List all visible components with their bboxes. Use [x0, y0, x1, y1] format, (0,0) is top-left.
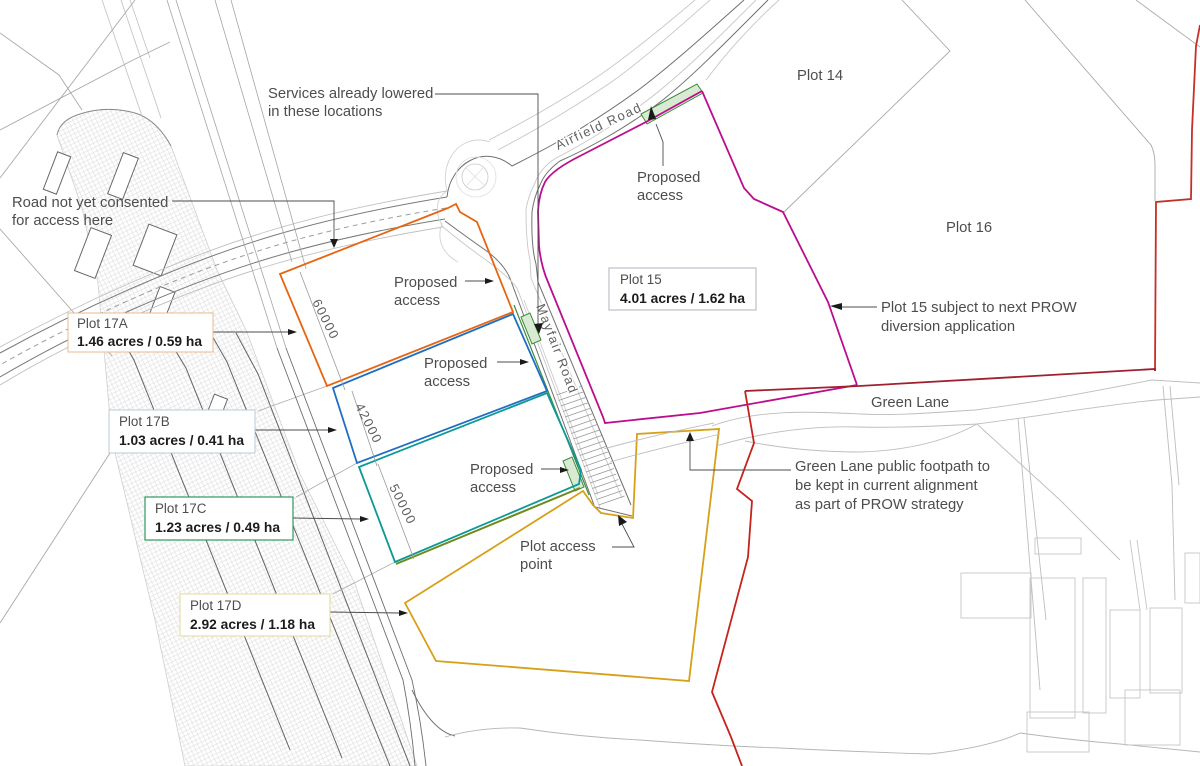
svg-text:point: point: [520, 557, 552, 573]
svg-text:Green Lane: Green Lane: [871, 395, 949, 411]
svg-text:Proposed: Proposed: [394, 275, 457, 291]
svg-text:Plot 15: Plot 15: [620, 272, 662, 287]
svg-text:Plot access: Plot access: [520, 539, 596, 555]
svg-text:Plot 17C: Plot 17C: [155, 501, 207, 516]
svg-text:Proposed: Proposed: [424, 356, 487, 372]
svg-text:access: access: [637, 188, 683, 204]
svg-text:Plot 16: Plot 16: [946, 220, 992, 236]
svg-text:1.46 acres / 0.59 ha: 1.46 acres / 0.59 ha: [77, 334, 202, 349]
svg-text:Plot 17B: Plot 17B: [119, 414, 170, 429]
svg-text:1.03 acres / 0.41 ha: 1.03 acres / 0.41 ha: [119, 433, 244, 448]
svg-text:access: access: [470, 480, 516, 496]
svg-text:be kept in current alignment: be kept in current alignment: [795, 478, 978, 494]
svg-text:Plot 17A: Plot 17A: [77, 316, 128, 331]
svg-text:Plot 15 subject to next PROW: Plot 15 subject to next PROW: [881, 300, 1077, 316]
svg-text:Proposed: Proposed: [470, 462, 533, 478]
svg-text:Services already lowered: Services already lowered: [268, 86, 433, 102]
svg-text:as part of PROW strategy: as part of PROW strategy: [795, 497, 964, 513]
svg-text:Road not yet consented: Road not yet consented: [12, 195, 168, 211]
svg-text:Green Lane public footpath to: Green Lane public footpath to: [795, 459, 990, 475]
svg-text:Proposed: Proposed: [637, 170, 700, 186]
svg-text:4.01 acres / 1.62 ha: 4.01 acres / 1.62 ha: [620, 291, 745, 306]
svg-text:in these locations: in these locations: [268, 104, 382, 120]
svg-text:Plot 14: Plot 14: [797, 68, 843, 84]
svg-text:diversion application: diversion application: [881, 319, 1015, 335]
svg-text:access: access: [424, 374, 470, 390]
svg-text:for access here: for access here: [12, 213, 113, 229]
svg-text:2.92 acres / 1.18 ha: 2.92 acres / 1.18 ha: [190, 617, 315, 632]
svg-text:Plot 17D: Plot 17D: [190, 598, 242, 613]
svg-text:1.23 acres / 0.49 ha: 1.23 acres / 0.49 ha: [155, 520, 280, 535]
svg-text:access: access: [394, 293, 440, 309]
